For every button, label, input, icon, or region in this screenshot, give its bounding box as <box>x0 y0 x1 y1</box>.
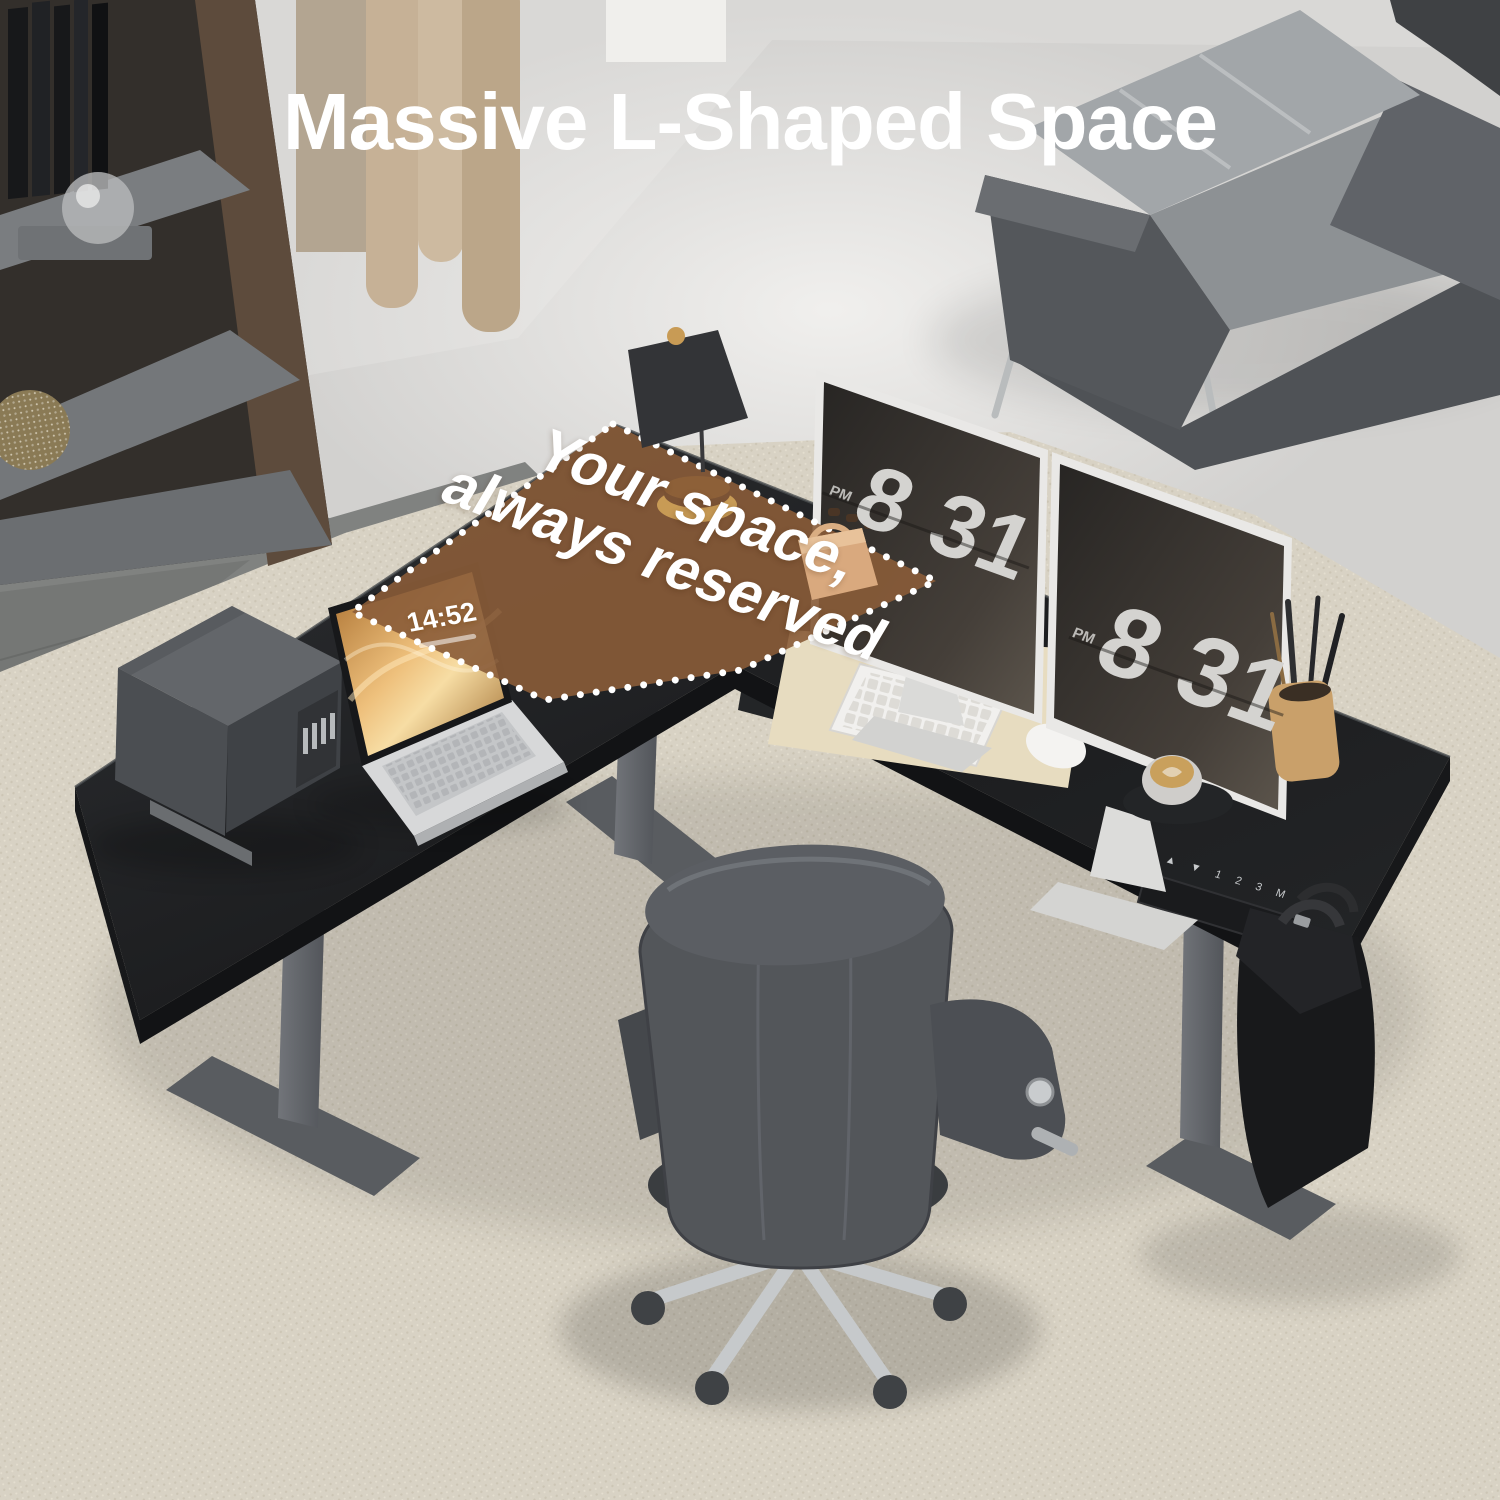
ink-window <box>312 723 317 749</box>
chair-shadow <box>560 1250 1040 1410</box>
white-pedestal <box>606 0 726 62</box>
ink-window <box>330 713 335 739</box>
meridiem-label: PM <box>1070 624 1098 647</box>
glass-sphere <box>62 172 134 244</box>
meridiem-label: PM <box>827 482 855 505</box>
clock-minute: 31 <box>913 472 1049 601</box>
ink-window <box>321 718 326 744</box>
caster <box>873 1375 907 1409</box>
clock-hour: 8 <box>840 445 929 556</box>
armrest-emblem <box>1027 1079 1053 1105</box>
clock-minute: 31 <box>1159 611 1310 754</box>
caster <box>695 1371 729 1405</box>
headline: Massive L-Shaped Space <box>0 76 1500 168</box>
lamp-cap <box>667 327 685 345</box>
product-photo-scene: Massive L-Shaped Space Your space, alway… <box>0 0 1500 1500</box>
ink-window <box>303 728 308 754</box>
caster <box>933 1287 967 1321</box>
clock-hour: 8 <box>1081 582 1180 706</box>
glass-sphere-highlight <box>76 184 100 208</box>
caster <box>631 1291 665 1325</box>
